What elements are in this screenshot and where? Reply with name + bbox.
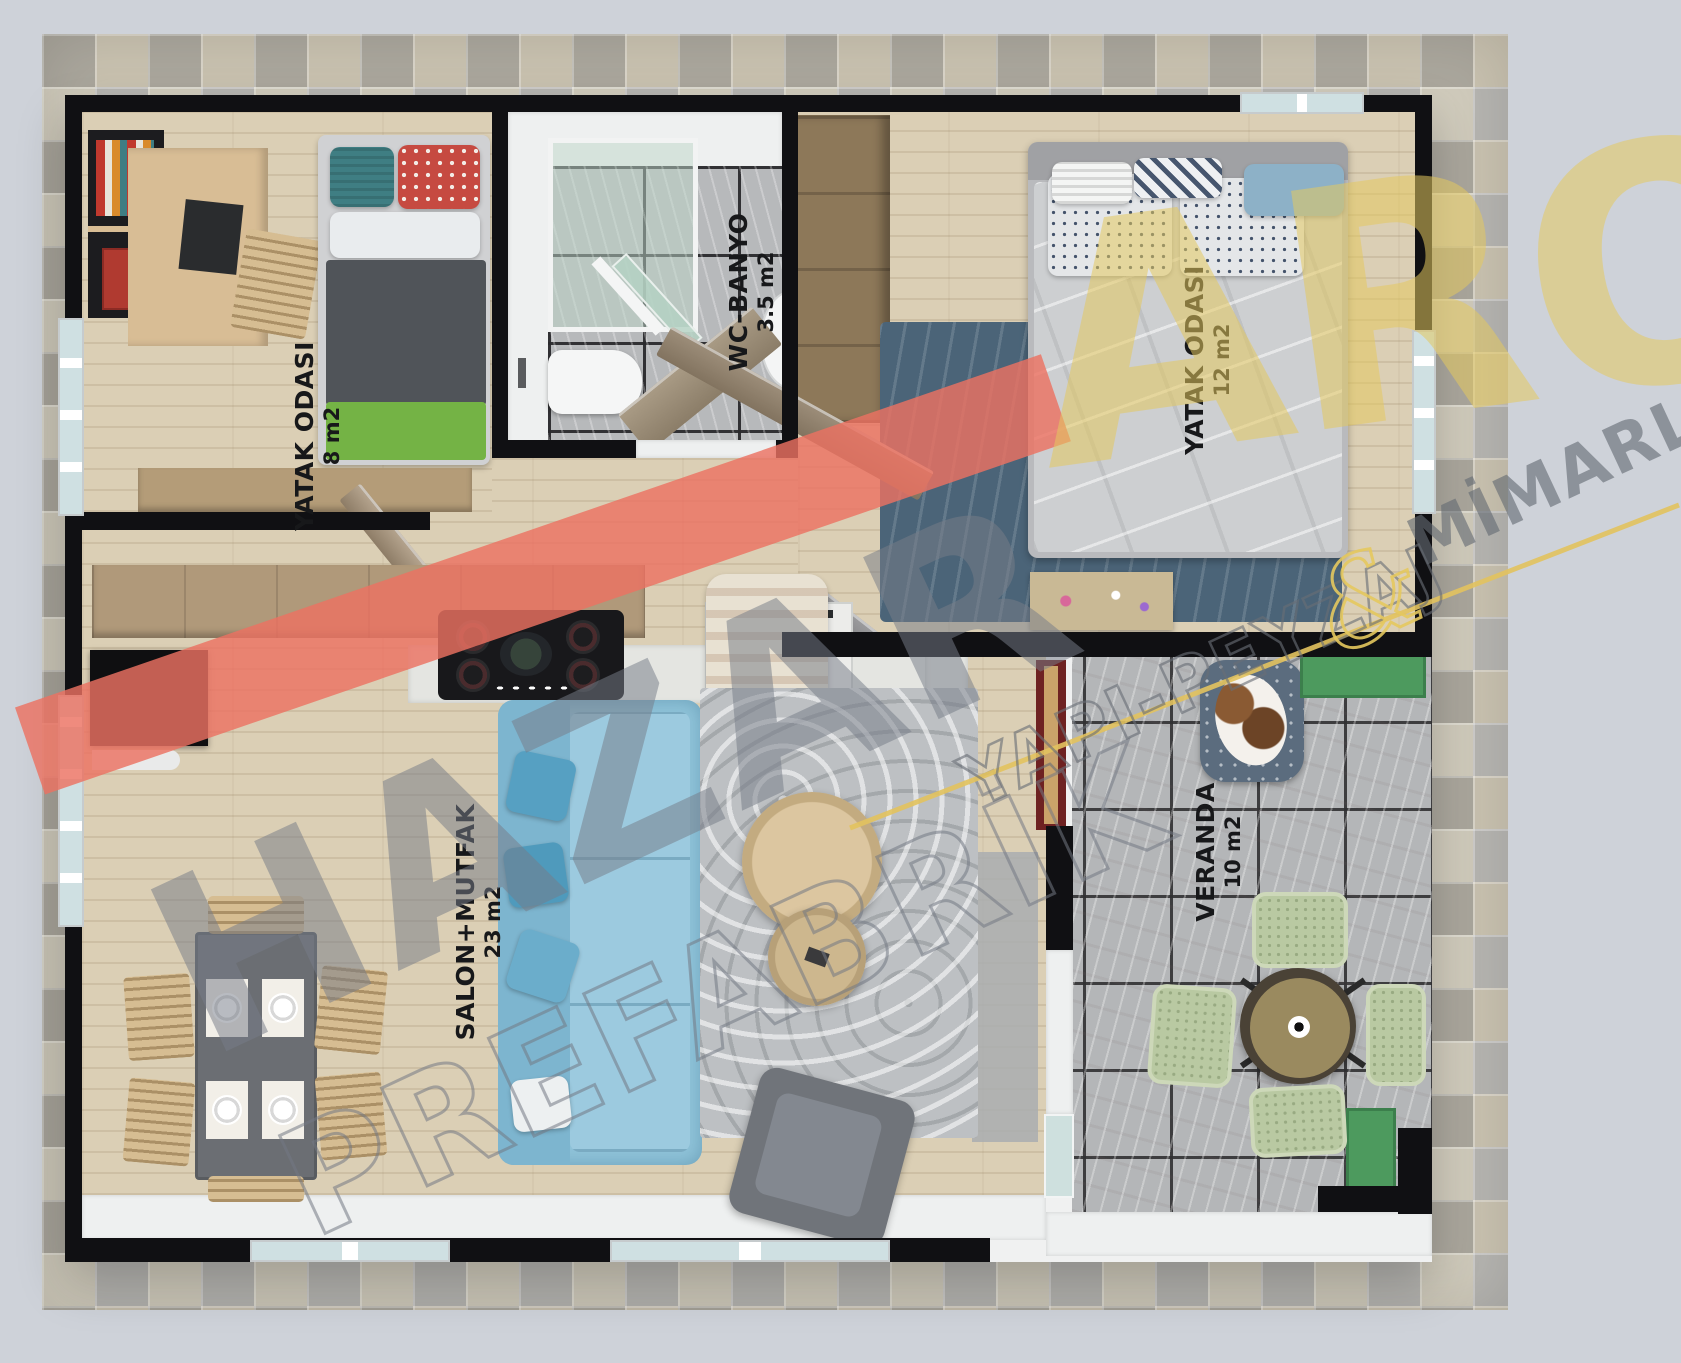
- pillow-striped: [1134, 158, 1222, 198]
- window-bedroom2-right: [1412, 330, 1436, 514]
- window-salon-bottom-2: [610, 1240, 890, 1262]
- wall-bedroom2-south: [782, 632, 1432, 657]
- shower-enclosure: [548, 138, 698, 332]
- room-area: 12 m2: [1209, 323, 1234, 396]
- room-name: SALON+MUTFAK: [451, 804, 481, 1041]
- armchair-cushion: [753, 1091, 884, 1219]
- wall-bedroom1-bathroom: [492, 112, 508, 458]
- dining-chair: [208, 896, 304, 934]
- pillow-teal: [330, 147, 394, 207]
- room-name: VERANDA: [1191, 782, 1221, 922]
- window-salon-bottom-1: [250, 1240, 450, 1262]
- toilet-flush-plate: [518, 358, 526, 388]
- blanket-green: [326, 402, 486, 460]
- outdoor-chair: [1252, 892, 1348, 968]
- dining-table: [195, 932, 317, 1180]
- room-area: 8 m2: [319, 407, 344, 465]
- window-bedroom1-left: [58, 318, 84, 516]
- dining-chair: [314, 965, 388, 1055]
- tv-screen: [90, 650, 208, 746]
- bed-end-bench: [1030, 572, 1173, 630]
- wall-bathroom-bedroom2: [782, 112, 798, 458]
- outdoor-chair: [1248, 1084, 1348, 1159]
- veranda-corner-rail: [1318, 1186, 1432, 1212]
- hall-runner-mat: [972, 852, 1038, 1142]
- outdoor-chair: [1147, 983, 1238, 1089]
- veranda-door-frame: [1036, 660, 1066, 830]
- outdoor-table: [1240, 968, 1356, 1084]
- room-label-bedroom-1: YATAK ODASI 8 m2: [290, 341, 344, 531]
- sofa-seats: [570, 712, 690, 1152]
- pillow-white: [330, 212, 480, 258]
- wall-bedroom1-south: [65, 512, 430, 530]
- veranda-threshold: [1046, 1212, 1432, 1256]
- sofa: [498, 700, 702, 1165]
- dining-chair: [208, 1176, 304, 1202]
- dining-chair: [314, 1071, 387, 1160]
- room-label-bathroom: WC-BANYO 3.5 m2: [724, 213, 778, 372]
- plate: [212, 993, 242, 1023]
- placemat: [262, 979, 304, 1037]
- veranda-door-panel: [1044, 666, 1058, 824]
- cat-bed: [1200, 660, 1304, 782]
- dining-chair: [123, 973, 195, 1061]
- wardrobe: [788, 115, 890, 423]
- cat: [1205, 667, 1296, 774]
- outdoor-chair: [1366, 984, 1426, 1086]
- toilet: [548, 350, 642, 414]
- sofa-pillow: [502, 841, 570, 909]
- tv-shelf: [92, 750, 180, 770]
- plate: [268, 1095, 298, 1125]
- wall-left: [65, 95, 82, 1262]
- coffee-table-small: [768, 908, 866, 1006]
- room-name: YATAK ODASI: [1180, 265, 1210, 455]
- planter-box: [1300, 650, 1426, 698]
- veranda-glass-panel: [1044, 1114, 1074, 1198]
- room-area: 3.5 m2: [753, 251, 778, 332]
- room-name: WC-BANYO: [724, 213, 754, 372]
- room-label-bedroom-2: YATAK ODASI 12 m2: [1180, 265, 1234, 455]
- plate: [268, 993, 298, 1023]
- bathroom-door-threshold: [636, 440, 776, 458]
- burner: [566, 658, 600, 692]
- table-item: [804, 947, 829, 968]
- floorplan-render: YATAK ODASI 8 m2 WC-BANYO 3.5 m2 YATAK O…: [0, 0, 1681, 1363]
- laptop: [179, 199, 244, 275]
- burner-center: [500, 632, 552, 676]
- duvet-dark: [326, 260, 486, 406]
- wall-top: [65, 95, 1432, 112]
- room-area: 10 m2: [1220, 815, 1245, 888]
- room-label-salon: SALON+MUTFAK 23 m2: [451, 804, 505, 1041]
- pillow-knit-white: [1052, 162, 1132, 204]
- cooktop-knobs: [492, 684, 570, 692]
- placemat: [262, 1081, 304, 1139]
- dining-chair: [122, 1077, 195, 1166]
- placemat: [206, 979, 248, 1037]
- placemat: [206, 1081, 248, 1139]
- room-label-veranda: VERANDA 10 m2: [1191, 782, 1245, 922]
- burner: [566, 620, 600, 654]
- burner: [456, 620, 490, 654]
- room-name: YATAK ODASI: [290, 341, 320, 531]
- window-bedroom2-top: [1240, 92, 1364, 114]
- sofa-pillow-white: [509, 1075, 572, 1133]
- pillow-blue: [1244, 164, 1344, 216]
- sofa-pillow: [504, 749, 578, 823]
- veranda-low-wall: [1046, 950, 1073, 1114]
- room-area: 23 m2: [480, 885, 505, 958]
- cooktop: [438, 610, 624, 700]
- veranda-post: [1046, 826, 1073, 952]
- outdoor-table-hub: [1288, 1016, 1310, 1038]
- pillow-red-pattern: [398, 145, 480, 209]
- plate: [212, 1095, 242, 1125]
- burner: [456, 658, 490, 692]
- window-salon-left: [58, 695, 84, 927]
